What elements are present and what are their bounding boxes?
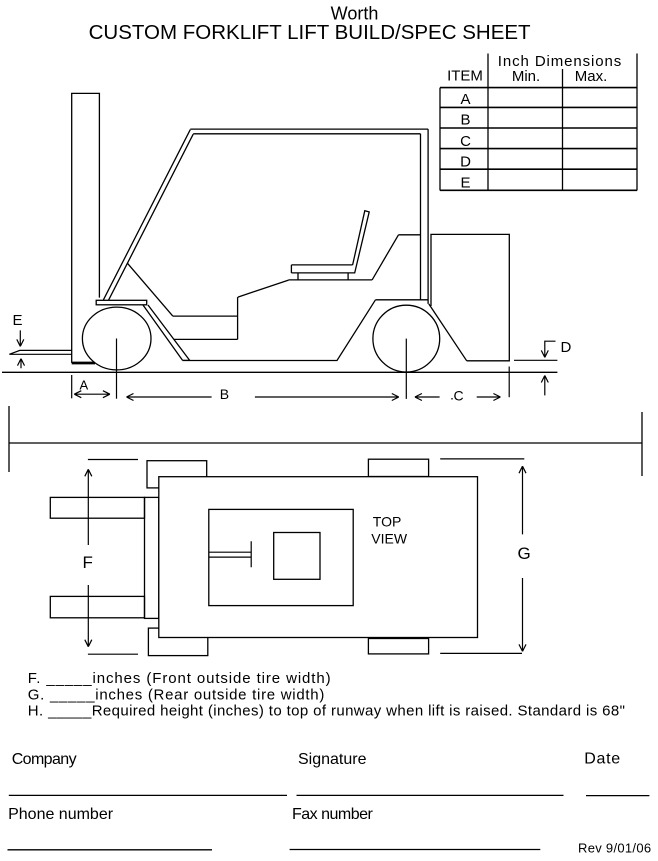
svg-text:H. _____Required height (inche: H. _____Required height (inches) to top … — [28, 703, 626, 720]
svg-text:VIEW: VIEW — [371, 531, 408, 547]
svg-text:F. _____inches (Front outside: F. _____inches (Front outside tire width… — [28, 670, 332, 687]
svg-text:Max.: Max. — [575, 68, 608, 85]
svg-text:C: C — [454, 388, 464, 404]
svg-text:D: D — [561, 339, 572, 356]
svg-text:E: E — [13, 312, 23, 329]
svg-text:Min.: Min. — [512, 68, 540, 85]
svg-text:Rev 9/01/06: Rev 9/01/06 — [578, 841, 651, 856]
svg-text:Fax number: Fax number — [292, 806, 374, 823]
svg-text:A: A — [460, 91, 470, 108]
svg-text:Signature: Signature — [298, 751, 367, 768]
svg-text:CUSTOM FORKLIFT LIFT BUILD/SPE: CUSTOM FORKLIFT LIFT BUILD/SPEC SHEET — [89, 21, 531, 44]
svg-text:C: C — [460, 133, 471, 150]
svg-text:B: B — [220, 386, 229, 402]
svg-text:TOP: TOP — [373, 513, 402, 529]
svg-text:G. _____inches (Rear outside t: G. _____inches (Rear outside tire width) — [28, 686, 325, 703]
svg-text:Company: Company — [12, 751, 77, 768]
svg-text:D: D — [460, 154, 471, 171]
svg-text:G: G — [518, 544, 531, 563]
svg-text:E: E — [460, 174, 470, 191]
svg-text:F: F — [83, 553, 93, 572]
svg-text:B: B — [460, 111, 470, 128]
svg-text:Phone number: Phone number — [8, 806, 114, 823]
svg-text:Date: Date — [584, 751, 621, 768]
svg-text:ITEM: ITEM — [447, 68, 483, 85]
